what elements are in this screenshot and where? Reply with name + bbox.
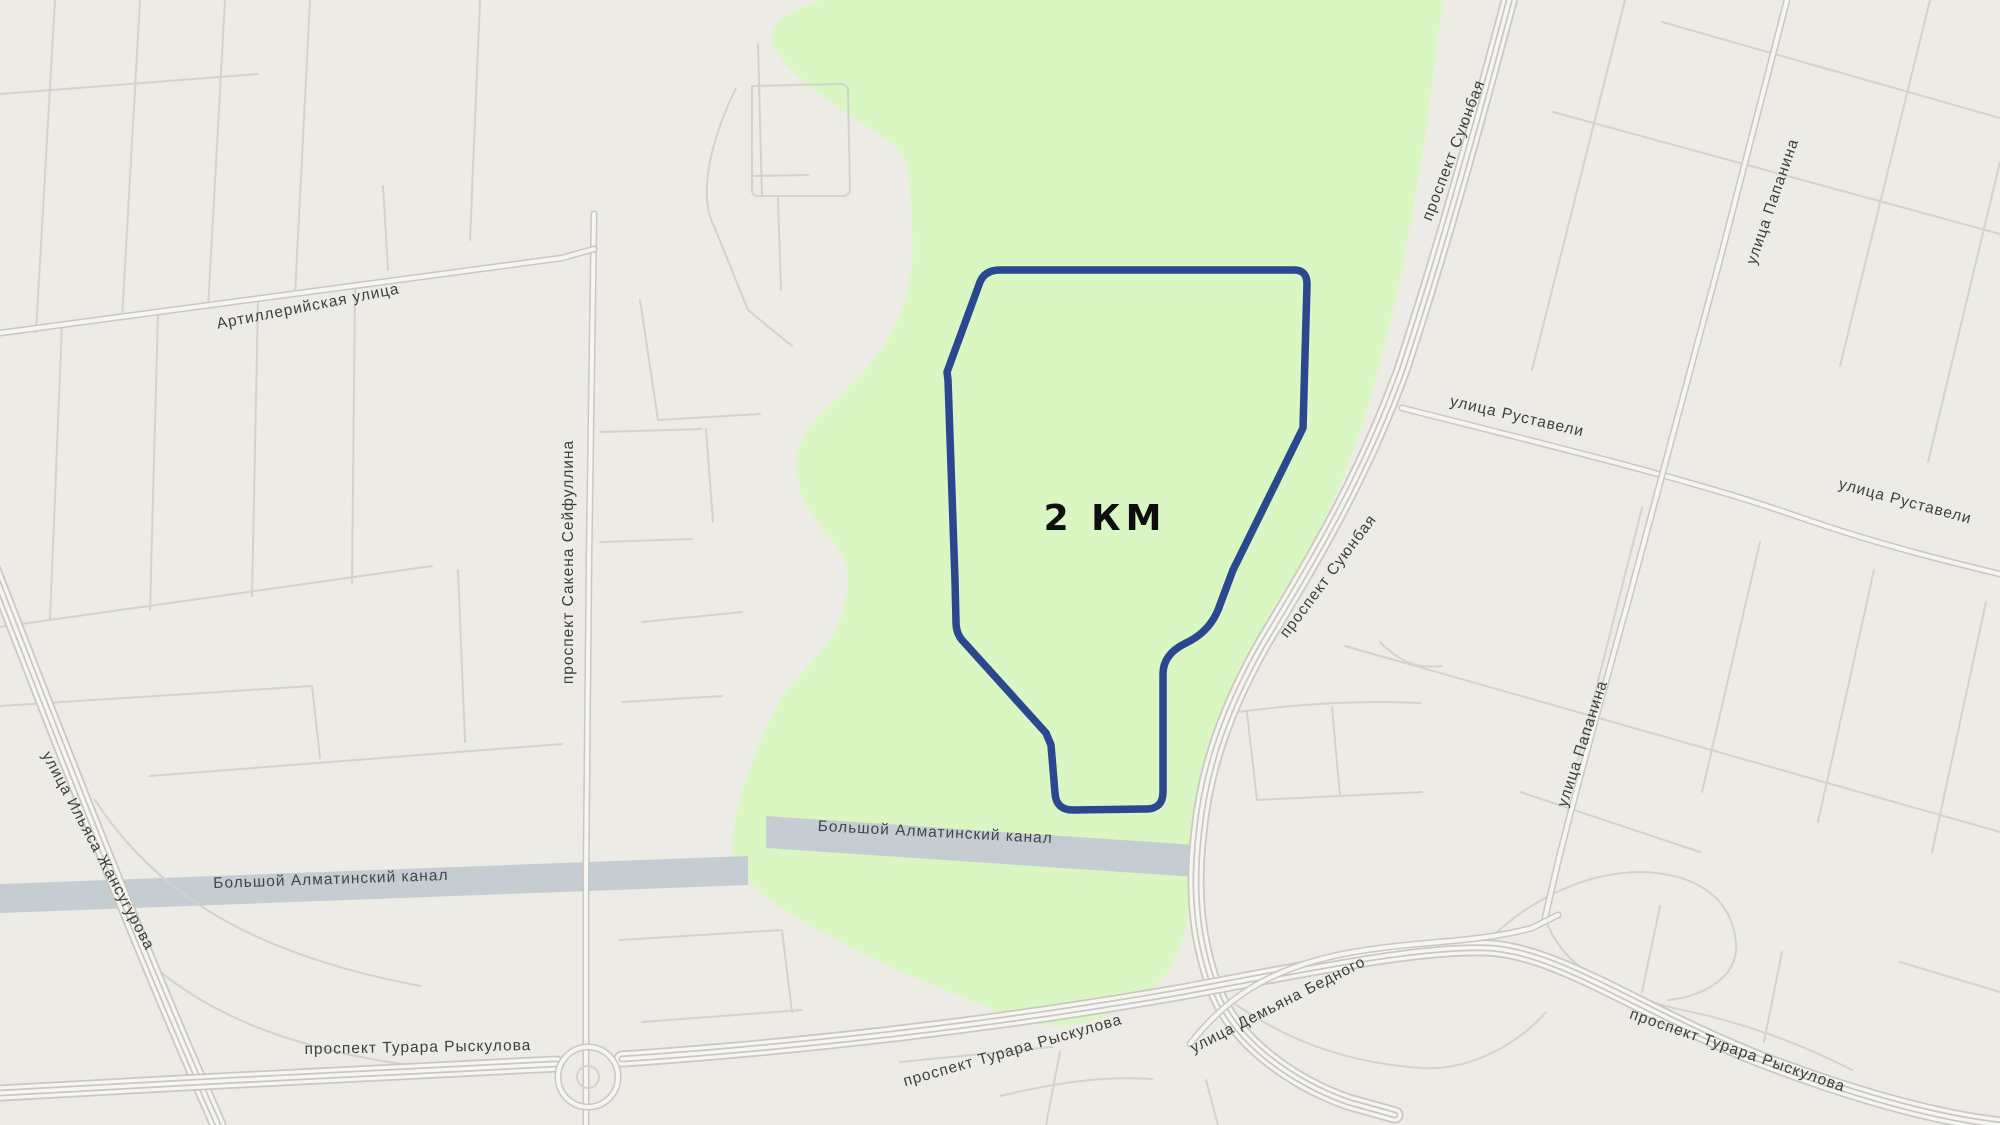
route-distance-label: 2 КМ bbox=[1044, 498, 1167, 539]
map-canvas[interactable]: Артиллерийская улица проспект Сакена Сей… bbox=[0, 0, 2000, 1125]
map-svg: Артиллерийская улица проспект Сакена Сей… bbox=[0, 0, 2000, 1125]
street-label-seifullin: проспект Сакена Сейфуллина bbox=[560, 440, 577, 684]
